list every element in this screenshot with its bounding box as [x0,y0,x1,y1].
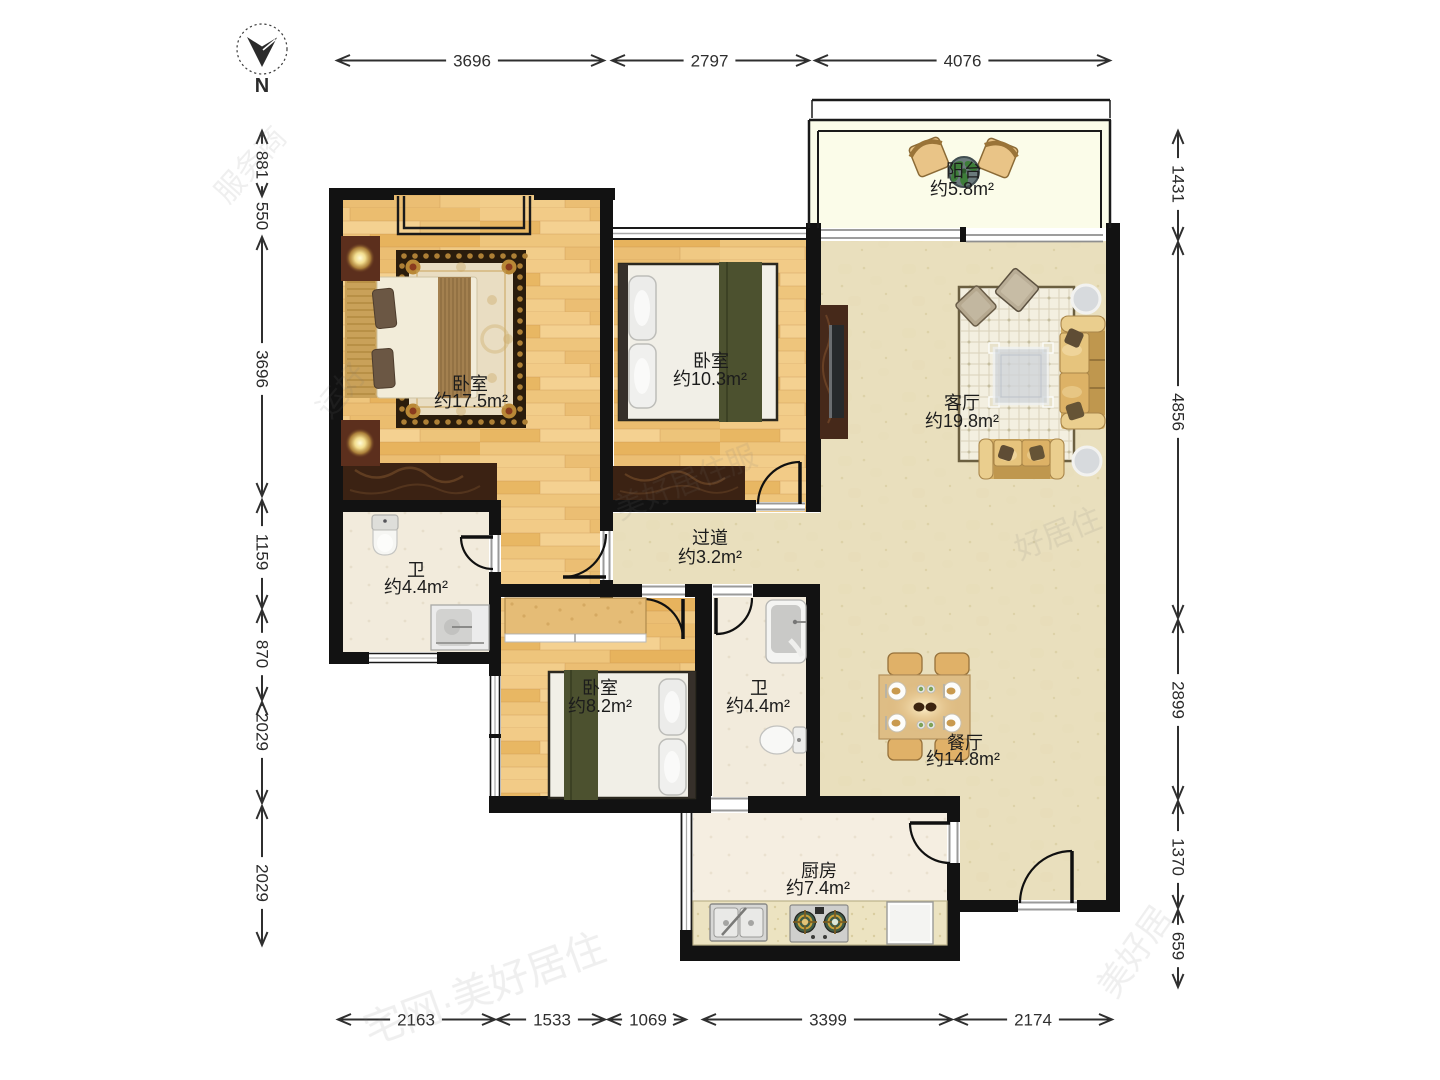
svg-text:N: N [255,75,269,97]
svg-text:约14.8m²: 约14.8m² [926,749,1000,769]
svg-text:550: 550 [253,202,272,230]
svg-text:约17.5m²: 约17.5m² [434,391,508,411]
svg-text:阳台: 阳台 [946,161,982,181]
svg-text:约10.3m²: 约10.3m² [673,369,747,389]
svg-text:1533: 1533 [533,1011,571,1030]
svg-text:4076: 4076 [944,52,982,71]
svg-text:约8.2m²: 约8.2m² [568,696,632,716]
svg-text:1159: 1159 [253,534,272,571]
svg-text:1431: 1431 [1169,165,1188,203]
svg-text:3696: 3696 [453,52,491,71]
svg-text:约4.4m²: 约4.4m² [384,577,448,597]
svg-text:卧室: 卧室 [582,678,618,698]
svg-text:3696: 3696 [253,350,272,388]
svg-text:约3.2m²: 约3.2m² [678,547,742,567]
svg-text:659: 659 [1169,932,1188,960]
svg-text:4856: 4856 [1169,393,1188,431]
svg-text:卫: 卫 [750,678,768,698]
svg-text:1069: 1069 [629,1011,667,1030]
svg-text:过道: 过道 [692,528,728,548]
svg-text:2797: 2797 [691,52,729,71]
svg-text:3399: 3399 [809,1011,847,1030]
svg-text:1370: 1370 [1169,838,1188,876]
svg-text:客厅: 客厅 [944,393,980,413]
svg-text:约19.8m²: 约19.8m² [925,411,999,431]
svg-text:约5.8m²: 约5.8m² [930,179,994,199]
svg-text:2899: 2899 [1169,681,1188,719]
svg-text:约4.4m²: 约4.4m² [726,696,790,716]
svg-text:约7.4m²: 约7.4m² [786,878,850,898]
svg-text:卧室: 卧室 [693,351,729,371]
svg-text:2029: 2029 [253,864,272,902]
svg-text:2174: 2174 [1014,1011,1052,1030]
svg-text:2029: 2029 [253,713,272,751]
svg-text:870: 870 [253,640,272,668]
